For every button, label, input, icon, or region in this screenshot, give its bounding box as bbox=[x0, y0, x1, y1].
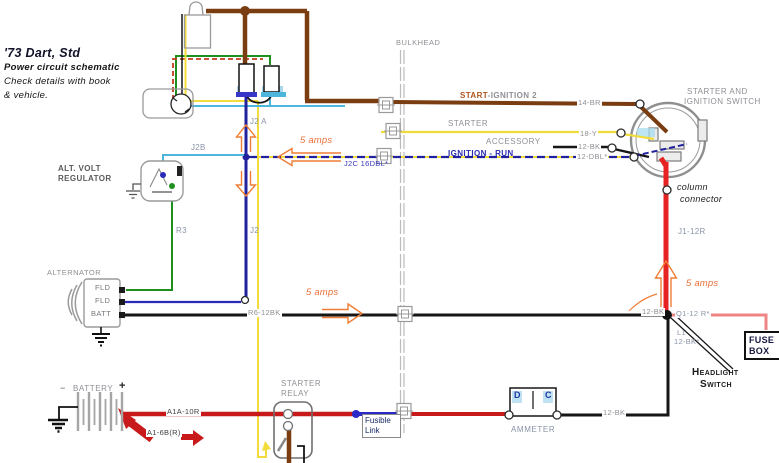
battery-plus-label: + bbox=[119, 381, 126, 392]
battery-label: BATTERY bbox=[73, 385, 113, 393]
ammeter-label: AMMETER bbox=[511, 426, 555, 434]
a1-6b-label: A1-6B(R) bbox=[146, 429, 182, 437]
bulkhead-label: BULKHEAD bbox=[396, 39, 440, 47]
wiring-schematic: '73 Dart, Std Power circuit schematic Ch… bbox=[0, 0, 779, 463]
ballast-resistor bbox=[236, 64, 286, 97]
j2-label: J2 bbox=[250, 227, 259, 235]
fuse-box: FUSE BOX bbox=[744, 331, 779, 360]
title-line3: Check details with book bbox=[4, 77, 111, 87]
headlight-switch-label-line1: Headlight bbox=[692, 368, 739, 378]
ammeter-c-terminal: C bbox=[545, 391, 552, 400]
fuse-box-label-line2: BOX bbox=[749, 346, 779, 356]
ammeter-black-wire bbox=[558, 318, 668, 415]
wire-code-18y: 18-Y bbox=[579, 130, 598, 138]
ignition-switch-label-line1: STARTER AND bbox=[687, 88, 748, 96]
bulkhead-connectors bbox=[375, 98, 414, 419]
distributor-wires bbox=[190, 95, 345, 457]
r3-label: R3 bbox=[176, 227, 187, 235]
title-line1: '73 Dart, Std bbox=[4, 47, 80, 60]
j2c-wire-label: J2C 16DBL* bbox=[344, 160, 388, 168]
headlight-switch-label-line2: Switch bbox=[700, 380, 732, 390]
five-amps-label-top: 5 amps bbox=[300, 136, 332, 146]
regulator-label-line2: REGULATOR bbox=[58, 175, 112, 183]
ignition-2-label-part: -IGNITION 2 bbox=[488, 91, 537, 100]
ignition-run-label: IGNITION - RUN bbox=[448, 150, 514, 158]
r6-12bk-label: R6-12BK bbox=[247, 309, 282, 317]
ammeter-d-terminal: D bbox=[514, 391, 521, 400]
starter-relay bbox=[274, 402, 312, 463]
j2b-label: J2B bbox=[191, 144, 206, 152]
wire-code-14br: 14-BR bbox=[577, 99, 602, 107]
ignition-switch-label-line2: IGNITION SWITCH bbox=[684, 98, 761, 106]
five-amps-label-middle: 5 amps bbox=[306, 288, 338, 298]
fusible-link-label-line2: Link bbox=[365, 426, 398, 436]
j2a-label: J2 A bbox=[250, 118, 267, 126]
q1-12r-label: Q1-12 R* bbox=[675, 310, 711, 318]
wire-code-12bk-bottom: 12-BK bbox=[602, 409, 626, 417]
regulator-label-line1: ALT. VOLT bbox=[58, 165, 101, 173]
battery-minus-label: − bbox=[60, 384, 66, 393]
alt-fld1-label: FLD bbox=[95, 284, 110, 292]
alternator-label: ALTERNATOR bbox=[47, 269, 101, 277]
ignition-switch bbox=[631, 103, 707, 177]
title-line2: Power circuit schematic bbox=[4, 63, 120, 73]
starter-relay-label-line1: STARTER bbox=[281, 380, 321, 388]
five-amps-label-right: 5 amps bbox=[686, 279, 718, 289]
start-ignition-2-label: START-IGNITION 2 bbox=[460, 92, 537, 100]
alt-batt-label: BATT bbox=[91, 310, 111, 318]
fusible-link-label-line1: Fusible bbox=[365, 416, 398, 426]
j1-12r-label: J1-12R bbox=[678, 228, 706, 236]
bulkhead-line bbox=[401, 50, 405, 433]
fusible-link-label-box: Fusible Link bbox=[362, 414, 401, 438]
accessory-wire-label: ACCESSORY bbox=[486, 138, 541, 146]
title-line4: & vehicle. bbox=[4, 91, 48, 101]
l1-code-label: 12-BK* bbox=[674, 338, 700, 346]
wire-code-12dbl: 12-DBL* bbox=[576, 153, 608, 161]
alt-fld2-label: FLD bbox=[95, 297, 110, 305]
starter-wire-label: STARTER bbox=[448, 120, 488, 128]
fuse-box-label-line1: FUSE bbox=[749, 335, 779, 345]
wire-code-12bk-top: 12-BK bbox=[577, 143, 601, 151]
starter-relay-label-line2: RELAY bbox=[281, 390, 309, 398]
battery bbox=[48, 392, 122, 432]
voltage-regulator bbox=[126, 161, 183, 201]
column-connector-label-line1: column bbox=[677, 183, 708, 192]
column-connector-label-line2: connector bbox=[680, 195, 722, 204]
a1a-10r-label: A1A-10R bbox=[166, 408, 201, 416]
l1-label: L1 bbox=[677, 329, 686, 337]
start-label-part: START bbox=[460, 91, 488, 100]
wire-code-12bk-junction: 12-BK bbox=[641, 308, 665, 316]
